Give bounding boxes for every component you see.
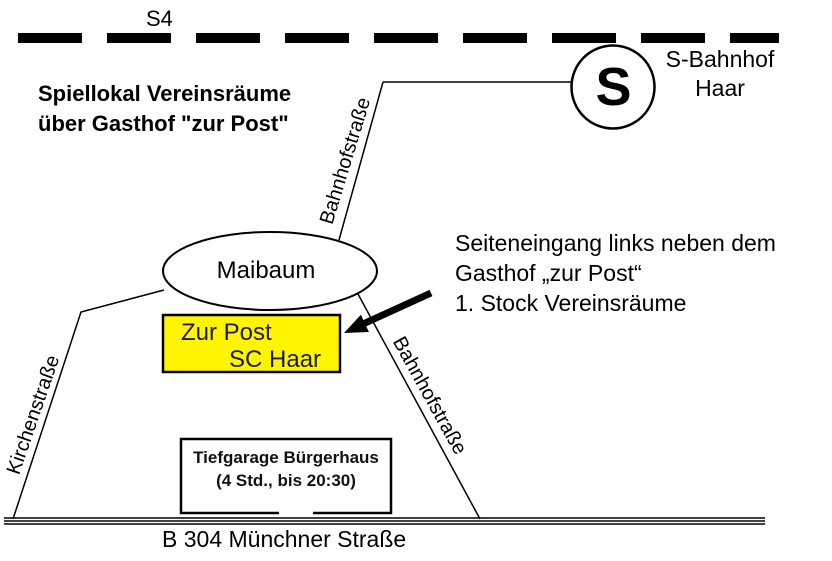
side-entrance-note-line3: 1. Stock Vereinsräume: [455, 288, 776, 318]
s-bahn-logo: S: [583, 56, 644, 118]
garage-label-line2: (4 Std., bis 20:30): [181, 469, 391, 492]
map-title-line2: über Gasthof "zur Post": [38, 109, 291, 139]
map-title: Spiellokal Vereinsräume über Gasthof "zu…: [38, 79, 291, 139]
station-name: S-Bahnhof Haar: [655, 45, 785, 103]
venue-label-line1: Zur Post: [181, 319, 321, 346]
garage-label: Tiefgarage Bürgerhaus (4 Std., bis 20:30…: [181, 446, 391, 492]
station-name-line1: S-Bahnhof: [655, 45, 785, 74]
side-entrance-note-line1: Seiteneingang links neben dem: [455, 228, 776, 258]
arrow-shaft: [363, 293, 431, 324]
b304-label: B 304 Münchner Straße: [162, 526, 406, 553]
map-title-line1: Spiellokal Vereinsräume: [38, 79, 291, 109]
venue-label: Zur Post SC Haar: [165, 319, 321, 373]
side-entrance-note: Seiteneingang links neben dem Gasthof „z…: [455, 228, 776, 318]
map-canvas: S4 Spiellokal Vereinsräume über Gasthof …: [0, 0, 832, 561]
side-entrance-note-line2: Gasthof „zur Post“: [455, 258, 776, 288]
garage-label-line1: Tiefgarage Bürgerhaus: [181, 446, 391, 469]
station-name-line2: Haar: [655, 74, 785, 103]
maibaum-label: Maibaum: [217, 257, 316, 285]
venue-label-line2: SC Haar: [229, 346, 321, 373]
s4-label: S4: [146, 6, 173, 32]
garage-entrance-gap: [279, 509, 313, 516]
